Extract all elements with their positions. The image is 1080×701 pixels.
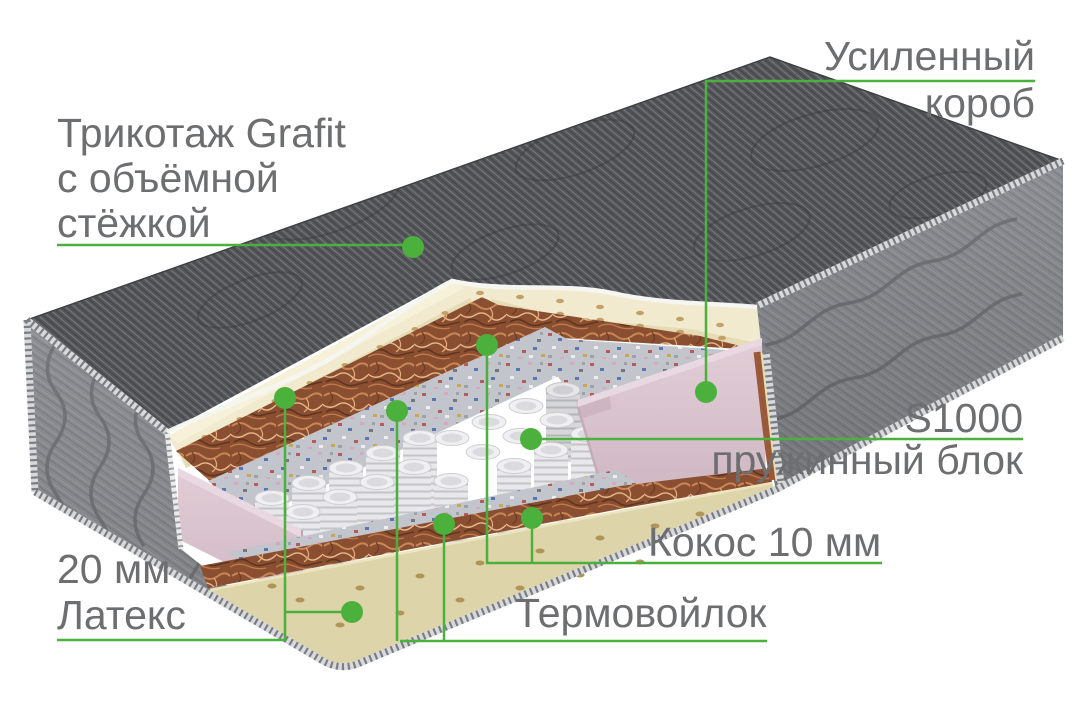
callout-dot-coconut-bottom [521, 507, 543, 529]
mattress-infographic: Трикотаж Grafit с объёмной стёжкой Усиле… [0, 0, 1080, 701]
label-coconut: Кокос 10 мм [648, 519, 881, 565]
label-felt: Термовойлок [515, 590, 768, 636]
callout-dot-felt-top [386, 400, 408, 422]
label-fabric-line-3: стёжкой [57, 200, 211, 246]
mattress-diagram: Трикотаж Grafit с объёмной стёжкой Усиле… [0, 0, 1080, 701]
label-springs-name: пружинный блок [711, 437, 1024, 483]
label-box-line-2: короб [925, 80, 1035, 126]
callout-dot-fabric [402, 236, 424, 258]
label-latex-thickness: 20 мм [57, 546, 170, 592]
callout-dot-latex-top [274, 387, 296, 409]
label-fabric-line-2: с объёмной [57, 155, 279, 201]
callout-dot-springs [520, 428, 542, 450]
callout-dot-felt-bottom [433, 513, 455, 535]
label-box-line-1: Усиленный [824, 33, 1035, 79]
callout-dot-box [695, 381, 717, 403]
label-springs-code: S1000 [904, 395, 1023, 441]
callout-dot-latex-bottom [341, 601, 363, 623]
label-fabric-line-1: Трикотаж Grafit [57, 110, 347, 156]
label-latex-name: Латекс [57, 592, 186, 638]
callout-dot-coconut-top [476, 334, 498, 356]
